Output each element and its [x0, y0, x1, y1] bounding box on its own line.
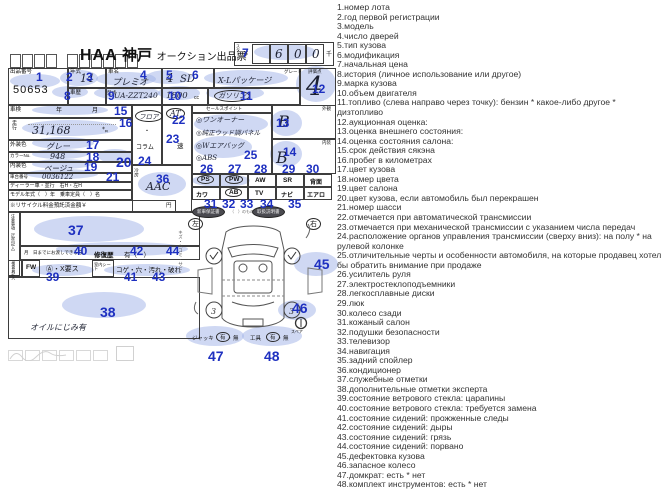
fw-label: FW — [26, 264, 36, 271]
tools-no: 無 — [283, 334, 289, 342]
start-price-label: スタート — [236, 44, 240, 64]
ext-grade-label: 外観 — [322, 107, 331, 112]
annotation-33: 33 — [240, 197, 253, 211]
history-label: 車歴 — [70, 91, 81, 97]
notes-area — [20, 212, 200, 246]
mileage-value: 31,168 — [32, 124, 71, 137]
annotation-36: 36 — [156, 172, 169, 186]
annotation-35: 35 — [288, 197, 301, 211]
shaken-label: 車検 — [10, 108, 21, 114]
ac-label: 冷房 — [134, 168, 139, 182]
color-no-value: 948 — [50, 152, 65, 161]
annotation-44: 44 — [166, 244, 179, 258]
chassis-value: 0036122 — [42, 173, 73, 181]
oil-note: オイルにじみ有 — [30, 322, 86, 333]
equip-aero: エアロ — [307, 190, 325, 199]
annotation-9: 9 — [108, 89, 115, 103]
grade-label: グレード — [284, 70, 302, 75]
legend-item: 48.комплект инструментов: есть * нет — [337, 480, 663, 490]
jack-label: ジャッキ — [192, 334, 214, 342]
sales-header: セールスポイント — [206, 107, 242, 112]
shaken-month: 月 — [92, 108, 98, 114]
annotation-19: 19 — [84, 160, 97, 174]
sheet-title: HAA 神戸 オークション出品票 — [80, 44, 247, 65]
scratch-legend: キズ・ヘコミ・サビ — [178, 230, 183, 294]
svg-text:3: 3 — [211, 307, 216, 316]
annotation-10: 10 — [168, 89, 181, 103]
shift-column: コラム — [136, 142, 154, 151]
ext-color-value: グレー — [46, 141, 70, 152]
legend-item: 25.отличительные черты и особенности авт… — [337, 251, 663, 270]
annotation-32: 32 — [222, 197, 235, 211]
color-no-label: カラーNo. — [10, 154, 31, 159]
spare-tire-icon — [294, 316, 308, 330]
annotation-31: 31 — [204, 197, 217, 211]
int-grade-label: 内装 — [322, 141, 331, 146]
price-digit: 0 — [294, 47, 302, 61]
lot-label: 出品番号 — [10, 70, 32, 76]
inspector-label: 検査員記入 — [11, 261, 15, 276]
annotation-28: 28 — [254, 162, 267, 176]
annotation-4: 4 — [140, 68, 147, 82]
annotation-3: 3 — [86, 70, 93, 84]
annotation-48: 48 — [264, 348, 280, 364]
annotation-12: 12 — [312, 82, 325, 96]
recycle-text: ※リサイクル料金預託済金額￥ — [10, 204, 87, 210]
sales-point: ◎ワンオーナー — [196, 115, 244, 125]
model-year-text: モデル年式（ ）年 乗車定員（ ）名 — [10, 193, 100, 198]
annotation-5: 5 — [166, 68, 173, 82]
annotation-43: 43 — [152, 270, 165, 284]
jack-sep: ・ — [227, 334, 233, 342]
annotation-38: 38 — [100, 304, 116, 320]
jack-no: 無 — [233, 334, 239, 342]
mileage-unit: ㌔ — [102, 128, 108, 134]
shift-dot: ・ — [144, 126, 150, 135]
annotation-41: 41 — [124, 270, 137, 284]
annotation-46: 46 — [292, 300, 308, 316]
annotation-7: 7 — [242, 46, 249, 60]
equip-ps: PS — [197, 175, 214, 184]
annotation-45: 45 — [314, 256, 330, 272]
car-diagram: 3 3 — [186, 222, 334, 338]
title-haa: HAA — [80, 47, 118, 64]
legend-item: 24.расположение органов управления транс… — [337, 232, 663, 251]
faded-bottom-row — [8, 346, 134, 361]
ext-color-label: 外装色 — [10, 143, 27, 149]
annotation-27: 27 — [228, 162, 241, 176]
legend-item: 11.топливо (слева направо через точку): … — [337, 98, 663, 117]
annotation-37: 37 — [68, 222, 84, 238]
annotation-8: 8 — [64, 89, 71, 103]
annotation-6: 6 — [192, 68, 199, 82]
displacement-unit: cc — [194, 96, 199, 101]
annotation-34: 34 — [260, 197, 273, 211]
repair-label: 修復歴 — [94, 249, 114, 259]
sales-point: ◎純正ウッド調パネル — [196, 127, 260, 137]
lot-number: 50653 — [13, 84, 49, 96]
sales-point: ◎ABS — [196, 154, 217, 162]
title-rest: オークション出品票 — [157, 52, 247, 63]
mileage-label: 走行 — [11, 120, 16, 138]
equip-tv: TV — [255, 190, 263, 197]
auction-sheet: HAA 神戸 オークション出品票 スタート ¥ 6 0 0 千 出品番号 506… — [8, 28, 336, 376]
annotation-39: 39 — [46, 270, 59, 284]
annotation-13: 13 — [276, 116, 289, 130]
annotation-11: 11 — [240, 89, 253, 103]
annotation-47: 47 — [208, 348, 224, 364]
tools-sep: ・ — [277, 334, 283, 342]
annotation-30: 30 — [306, 162, 319, 176]
price-unit: 千 — [326, 52, 332, 58]
equip-sr: SR — [283, 177, 292, 184]
shaken-year: 年 — [56, 108, 62, 114]
chassis-label: 車台番号 — [10, 175, 28, 180]
equip-rear-tire: 背面 — [310, 177, 322, 186]
spare-label: スペア — [291, 330, 303, 334]
annotation-40: 40 — [74, 244, 87, 258]
dealer-row-text: ディーラー車・並行 右H・左H — [10, 184, 82, 189]
annotation-20: 20 — [116, 154, 132, 170]
annotation-26: 26 — [200, 162, 213, 176]
annotation-25: 25 — [244, 148, 257, 162]
sales-point: ◎Wエアバッグ — [196, 141, 244, 151]
model-code-value: UA-ZZT240 — [114, 91, 158, 100]
annotation-14: 14 — [283, 145, 296, 159]
annotation-22: 22 — [172, 113, 185, 127]
seat-label: 室内シート — [94, 263, 112, 271]
annotation-21: 21 — [106, 170, 119, 184]
shift-floor: フロア — [135, 110, 163, 122]
legend-list: 1.номер лота2.год первой регистрации3.мо… — [337, 3, 663, 490]
legend-item: 2.год первой регистрации — [337, 13, 663, 23]
tools-label: 工具 — [250, 334, 261, 342]
int-color-label: 内装色 — [10, 164, 27, 170]
legend-item: 28.легкосплавные диски — [337, 289, 663, 299]
annotation-42: 42 — [130, 244, 143, 258]
price-digit: 0 — [312, 47, 320, 61]
annotation-1: 1 — [36, 70, 43, 84]
title-kobe: 神戸 — [122, 47, 152, 64]
price-digit: 6 — [275, 47, 283, 61]
annotation-2: 2 — [66, 70, 73, 84]
equip-aw: AW — [255, 177, 265, 184]
annotation-16: 16 — [119, 116, 132, 130]
grade-value: X-Lパッケージ — [218, 75, 271, 86]
annotation-23: 23 — [166, 132, 179, 146]
annotation-29: 29 — [282, 162, 295, 176]
yen-suffix: 円 — [166, 204, 172, 210]
annotation-24: 24 — [138, 154, 151, 168]
